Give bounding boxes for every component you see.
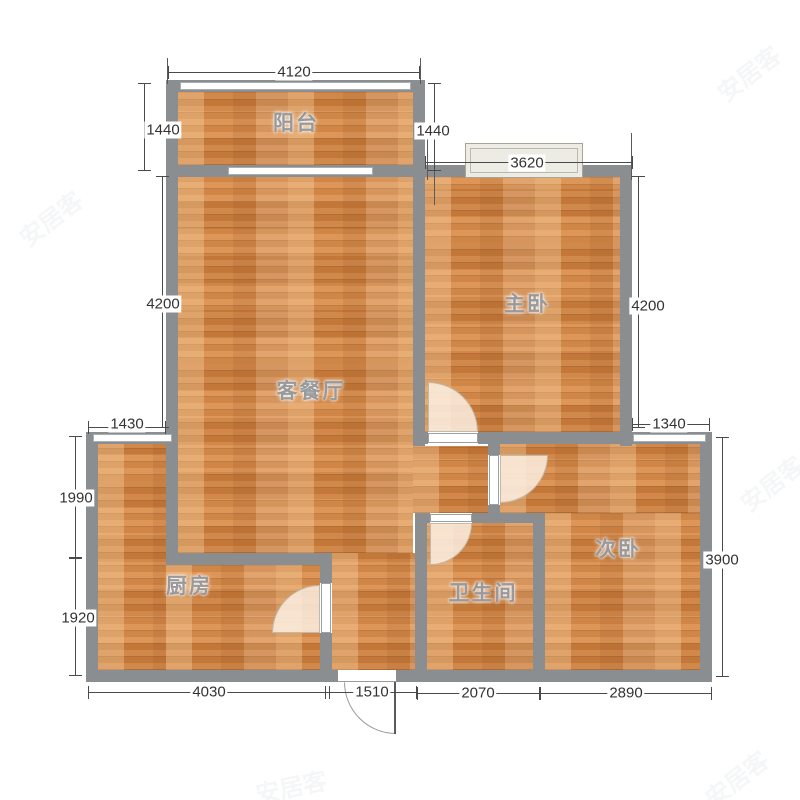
kitchen-door-leaf (321, 583, 331, 633)
kitchen-floor-upper (98, 444, 166, 670)
dim-top-4120: 4120 (275, 64, 312, 81)
dim-bottom-1510: 1510 (353, 684, 390, 701)
wall-kitchen-left (86, 432, 98, 682)
floor-plan: 安居客 安居客 安居客 安居客 安居客 (0, 0, 800, 800)
kitchen-label: 厨房 (166, 570, 212, 600)
dim-kitchen-lower-1920: 1920 (59, 610, 96, 627)
wall-master-bottom-left (413, 432, 428, 444)
wall-bath-top-left (415, 513, 430, 523)
dim-bottom-4030: 4030 (190, 684, 227, 701)
wall-bottom-left (86, 670, 338, 682)
wall-bath-bed2 (533, 513, 545, 682)
wall-bath-top-right (472, 513, 545, 523)
dim-master-4200: 4200 (629, 298, 666, 315)
dim-bottom-2890: 2890 (607, 685, 644, 702)
balcony-label: 阳台 (273, 107, 319, 137)
bed2-window (633, 434, 706, 442)
dim-kitchen-upper-1990: 1990 (57, 490, 94, 507)
watermark: 安居客 (709, 37, 787, 109)
wall-living-left (166, 80, 178, 565)
master-door-leaf (428, 433, 478, 443)
dim-living-4200: 4200 (144, 296, 181, 313)
dim-balcony-left-1440: 1440 (144, 122, 181, 139)
extension-line (434, 171, 435, 205)
watermark: 安居客 (697, 742, 775, 800)
dim-master-window-3620: 3620 (508, 155, 545, 172)
master-label: 主卧 (504, 288, 550, 318)
living-label: 客餐厅 (277, 375, 346, 405)
balcony-window (180, 82, 411, 90)
bed2-door-leaf (489, 455, 499, 505)
bed2-label: 次卧 (595, 533, 641, 563)
dim-balcony-right-1440: 1440 (414, 123, 451, 140)
dim-bed2-3900: 3900 (703, 552, 740, 569)
dim-bed2-window-1340: 1340 (650, 416, 687, 433)
watermark: 安居客 (252, 761, 330, 800)
kitchen-window (93, 434, 172, 442)
wall-kitchen-step (166, 553, 332, 565)
watermark: 安居客 (11, 182, 89, 254)
wall-bottom-right (396, 670, 712, 682)
extension-line (420, 58, 421, 84)
balcony-slider-window (228, 167, 373, 175)
bath-label: 卫生间 (449, 577, 518, 607)
watermark: 安居客 (732, 447, 800, 519)
dim-kitchen-top-1430: 1430 (108, 416, 145, 433)
wall-bath-left (415, 513, 427, 682)
hallway-floor (413, 446, 488, 513)
entrance-door-leaf (394, 682, 396, 734)
bath-door-leaf (430, 514, 472, 522)
dim-bottom-2070: 2070 (459, 685, 496, 702)
entry-corridor-floor (332, 553, 415, 670)
living-floor (178, 177, 413, 553)
extension-line (427, 133, 428, 180)
entrance-opening (338, 670, 396, 682)
